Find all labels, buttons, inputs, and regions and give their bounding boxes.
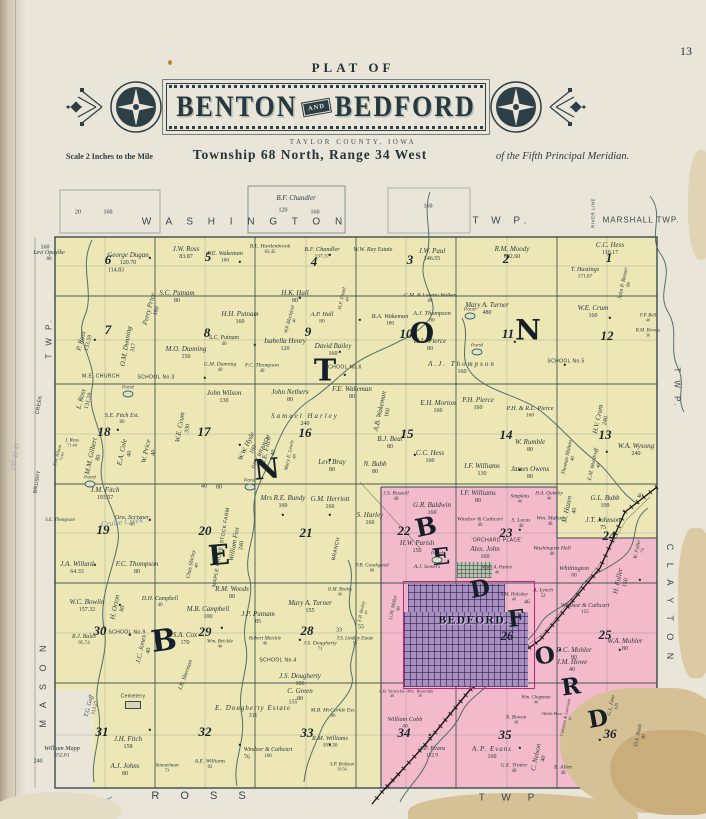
parcel-label: J.W. Paul146.55 xyxy=(419,248,446,262)
parcel-label: P.H. & R.L. Pierce160 xyxy=(506,406,553,419)
parcel-label: M. Hazen40 xyxy=(561,495,581,525)
building-dot xyxy=(239,261,241,263)
pond-label: Pond xyxy=(122,386,134,391)
township-edge-label: T W P xyxy=(479,793,542,804)
section-number: 3 xyxy=(407,253,414,267)
parcel-label: B.F. Chandler137.37 xyxy=(304,247,339,260)
building-dot xyxy=(299,297,301,299)
section-number: 31 xyxy=(96,725,109,739)
parcel-label: A. Lynch52 xyxy=(533,587,553,598)
parcel-label: O.M. Dunning317 xyxy=(119,326,140,369)
pond-symbol xyxy=(432,557,443,564)
building-dot xyxy=(282,514,284,516)
parcel-label: Chas Shirley40 xyxy=(185,550,202,581)
parcel-label: W.A. Mohler80 xyxy=(607,638,642,652)
parcel-label: A.J. Thompson160 xyxy=(428,361,496,375)
pond-label: Pond xyxy=(464,308,476,313)
parcel-label: Isabella Henry120 xyxy=(264,338,306,352)
section-number: 34 xyxy=(398,726,411,740)
pond-symbol xyxy=(472,349,483,356)
parcel-label: Stienelman73 xyxy=(155,763,178,774)
parcel-label: A.P. Evans152.9 xyxy=(418,746,445,759)
parcel-label: N. Bubb80 xyxy=(364,461,387,475)
parcel-label: A.J. Johns80 xyxy=(111,763,140,777)
building-dot xyxy=(417,519,419,521)
parcel-label: C.M. & Loretta Walker80 xyxy=(404,292,456,303)
benton-map-letter: O xyxy=(410,319,434,350)
pond-symbol xyxy=(85,481,96,488)
section-number: 35 xyxy=(499,728,512,742)
acreage-number: 160 xyxy=(41,245,50,252)
parcel-label: P.H. Pierce160 xyxy=(462,397,494,411)
building-dot xyxy=(119,604,121,606)
parcel-label: W.W. Ray Estate xyxy=(354,247,393,254)
parcel-label: P.B. Goodspeed80 xyxy=(355,563,388,574)
parcel-label: William Fox240 xyxy=(228,527,248,563)
township-edge-label: MARSHALL TWP. xyxy=(603,217,680,226)
section-number: 4 xyxy=(311,255,318,269)
township-edge-label: T W P. xyxy=(472,216,531,227)
building-dot xyxy=(239,744,241,746)
pond-label: Pond xyxy=(84,476,96,481)
parcel-label: William Mapp152.81 xyxy=(44,746,80,759)
parcel-label: T. Hastings171.87 xyxy=(571,267,600,280)
building-dot xyxy=(639,579,641,581)
section-number: 16 xyxy=(299,426,312,440)
parcel-label: J.P. Putnam85 xyxy=(241,611,275,625)
acreage-number: 160 xyxy=(424,204,433,211)
parcel-label: J.S. Dougherty71 xyxy=(303,640,336,651)
parcel-label: H.H. Putnam160 xyxy=(221,311,258,325)
township-edge-label: R O S S xyxy=(151,790,254,802)
parcel-label: O.M. Bealey40 xyxy=(328,587,353,597)
parcel-label: B.A. Wakeman180 xyxy=(372,314,409,327)
parcel-label: Wm. Chapman40 xyxy=(521,695,550,705)
parcel-label: W.E. Crum160 xyxy=(578,305,609,319)
parcel-label: F.P. Bell40 xyxy=(640,313,656,323)
parcel-label: G.E. Trotter40 xyxy=(500,762,527,773)
section-number: 28 xyxy=(301,624,314,638)
parcel-label: D.H. Campbell40 xyxy=(142,596,178,608)
parcel-label: John Wilson130 xyxy=(207,390,241,404)
building-dot xyxy=(429,339,431,341)
parcel-label: Robert Meickle40 xyxy=(249,636,281,647)
acreage-number: 20 xyxy=(75,210,81,217)
acreage-number: 160 xyxy=(104,210,113,217)
benton-map-letter: T xyxy=(314,355,336,388)
parcel-label: Wm. Brickle40 xyxy=(207,639,233,650)
parcel-label: E.A. Wilson72.63 xyxy=(53,444,67,467)
parcel-label: I.F. Williams130 xyxy=(464,463,499,477)
parcel-label: Windsor & Cathcart40 xyxy=(457,516,503,527)
section-number: 7 xyxy=(105,323,112,337)
pond-symbol xyxy=(465,313,476,320)
section-number: 17 xyxy=(198,425,211,439)
benton-map-letter: N xyxy=(515,316,541,347)
parcel-label: W.E. Crum330 xyxy=(174,412,193,445)
parcel-label: R.M. Williams107.30 xyxy=(312,736,348,749)
building-dot xyxy=(117,429,119,431)
parcel-label: S.E. Thompson xyxy=(45,517,75,522)
parcel-label: J.H. Fitch158 xyxy=(114,736,142,750)
parcel-label: W. Price40 xyxy=(141,439,160,465)
landmark-label: SCHOOL No.6 xyxy=(324,365,361,371)
building-dot xyxy=(149,519,151,521)
section-number: 2 xyxy=(503,252,510,266)
building-dot xyxy=(149,257,151,259)
building-dot xyxy=(559,649,561,651)
parcel-label: John P. Besser80 xyxy=(617,267,635,301)
parcel-label: Alex. John160 xyxy=(470,546,500,560)
section-number: 6 xyxy=(105,253,112,267)
building-dot xyxy=(329,459,331,461)
building-dot xyxy=(519,747,521,749)
parcel-label: A.P. Evans160 xyxy=(472,746,512,760)
building-dot xyxy=(94,564,96,566)
section-number: 13 xyxy=(599,428,612,442)
acreage-number: 33 xyxy=(336,628,342,635)
parcel-label: G.M. Herriott160 xyxy=(310,496,349,510)
parcel-label: Levi Bray80 xyxy=(318,459,345,473)
parcel-label: J.M. Fitch193.57 xyxy=(91,487,120,501)
acreage-number: 160 xyxy=(311,210,320,217)
landmark-label: CREEK xyxy=(36,395,45,415)
pond-label: Pond xyxy=(471,344,483,349)
township-edge-label: RIVER LINE xyxy=(592,198,597,228)
landmark-label: BRUSHY xyxy=(33,470,42,494)
parcel-label: H. Fuller150 xyxy=(612,568,631,596)
parcel-label: S. Lucas40 xyxy=(512,517,531,528)
parcel-label: G.M. Dunning40 xyxy=(204,361,237,372)
section-number: 11 xyxy=(502,327,514,341)
section-number: 24 xyxy=(603,529,616,543)
acreage-number: 46 xyxy=(524,600,530,607)
section-number: 22 xyxy=(398,524,411,538)
parcel-label: Whittington80 xyxy=(559,566,589,579)
parcel-label: W. Fuller74 xyxy=(633,539,648,560)
parcel-label: F.E. Wakeman80 xyxy=(332,386,372,400)
parcel-label: A.B. Vansickle40 xyxy=(379,689,405,698)
map-labels-layer: Levi Opdylke80George Dugan120.70J.W. Ros… xyxy=(0,0,706,819)
parcel-label: A.P. Hall80 xyxy=(311,312,334,325)
parcel-label: Windsor & Cathcart160 xyxy=(244,747,293,759)
building-dot xyxy=(254,344,256,346)
atlas-page: 13 PLAT OF BENTON AND BED xyxy=(0,0,706,819)
parcel-label: Washington Hall40 xyxy=(533,545,571,556)
parcel-label: W.C. Bowlin157.32 xyxy=(70,599,105,613)
building-dot xyxy=(619,649,621,651)
section-number: 15 xyxy=(401,427,414,441)
pond-symbol xyxy=(123,391,134,398)
parcel-label: W.A. Wysong240 xyxy=(618,443,654,457)
parcel-label: M.B. Campbell100 xyxy=(187,606,230,620)
section-number: 30 xyxy=(94,624,107,638)
building-dot xyxy=(359,319,361,321)
parcel-label: M.B. McCorkle Est.80 xyxy=(311,707,356,718)
parcel-label: B.J. Beal80 xyxy=(377,436,402,450)
parcel-label: E.B. Bealey40 xyxy=(357,601,371,624)
township-edge-label: C L A Y T O N xyxy=(664,544,674,665)
landmark-label: SCHOOL No.4 xyxy=(259,658,296,664)
building-dot xyxy=(519,529,521,531)
acreage-number: 76 xyxy=(244,755,250,762)
parcel-label: A.E. Williams92 xyxy=(195,758,226,769)
acreage-number: 120 xyxy=(279,208,288,215)
parcel-label: E.H. Morton160 xyxy=(420,400,456,414)
benton-map-letter: B xyxy=(149,623,179,659)
parcel-label: F.C. Thompson40 xyxy=(245,362,279,373)
parcel-label: C.C. Hess160 xyxy=(416,450,444,464)
acreage-number: 80 xyxy=(216,485,222,492)
parcel-label: J.S. Russell40 xyxy=(383,490,409,501)
parcel-label: Windsor & Cathcart155 xyxy=(561,603,610,615)
building-dot xyxy=(149,729,151,731)
parcel-label: A.B. Wakeman160 xyxy=(373,391,395,434)
section-number: 1 xyxy=(606,251,613,265)
section-number: 20 xyxy=(199,524,212,538)
parcel-label: R.M. Woods80 xyxy=(215,586,249,600)
building-dot xyxy=(414,454,416,456)
parcel-label: R.M. Brooks30 xyxy=(636,328,660,338)
outside-parcel-label: B.F. Chandler xyxy=(276,195,315,203)
landmark-label: SCHOOL No.9 xyxy=(108,630,145,636)
parcel-label: George Dugan120.70 xyxy=(107,252,149,266)
parcel-label: Mrs. Reynolds30 xyxy=(407,689,433,698)
parcel-label: N. Bowen38 xyxy=(506,715,526,726)
parcel-label: Perry Price160 xyxy=(142,292,164,327)
acreage-number: 114.83 xyxy=(108,268,124,275)
township-edge-label: T W P. xyxy=(46,317,55,358)
building-dot xyxy=(514,341,516,343)
section-number: 12 xyxy=(601,329,614,343)
acreage-number: 155 xyxy=(289,700,298,707)
parcel-label: F.E. Wakeman160 xyxy=(207,251,243,264)
parcel-label: Welsh Bros xyxy=(542,712,562,717)
building-dot xyxy=(606,451,608,453)
building-dot xyxy=(329,514,331,516)
pond-symbol xyxy=(245,484,256,491)
building-dot xyxy=(94,339,96,341)
parcel-label: C. Nelson40 xyxy=(530,743,550,773)
pond-label: Pond xyxy=(244,479,256,484)
parcel-label: Mrs R.E. Bundy160 xyxy=(261,495,306,509)
handwritten-note: 150 40 65 xyxy=(10,443,22,472)
parcel-label: R.J. Bales95.74 xyxy=(72,634,96,646)
parcel-label: E. Dougherty Estate311 xyxy=(215,705,291,719)
section-number: 32 xyxy=(199,725,212,739)
parcel-label: J.S. Dougherty106 xyxy=(279,673,321,687)
parcel-label: G.H. Miller80 xyxy=(388,595,404,621)
building-dot xyxy=(129,634,131,636)
parcel-label: H.K. Hall80 xyxy=(281,290,308,304)
section-number: 8 xyxy=(204,326,211,340)
section-number: 9 xyxy=(305,325,312,339)
bedford-map-letter: R xyxy=(560,673,582,701)
parcel-label: W. Rumble80 xyxy=(515,439,545,453)
parcel-label: Thomas Mahan40 xyxy=(561,440,579,477)
landmark-label: M.E. CHURCH xyxy=(82,374,120,380)
section-number: 33 xyxy=(301,726,314,740)
parcel-label: B.L. Hardenbrook63.45 xyxy=(250,243,291,254)
parcel-label: W.P. Blackford40 xyxy=(283,305,300,335)
parcel-label: B. Allen40 xyxy=(554,764,572,775)
acreage-number: 40 xyxy=(637,494,643,501)
township-edge-label: T W P. xyxy=(672,367,681,408)
landmark-label: Cemetery xyxy=(121,694,146,700)
parcel-label: E.A. Cole40 xyxy=(116,438,136,467)
section-number: 5 xyxy=(205,250,212,264)
building-dot xyxy=(609,317,611,319)
building-dot xyxy=(221,627,223,629)
building-dot xyxy=(599,519,601,521)
bedford-map-letter: D xyxy=(586,705,610,733)
parcel-label: M.O. Dunning150 xyxy=(166,346,207,360)
parcel-label: John Nethers80 xyxy=(271,389,308,403)
parcel-label: S.C. Putnam80 xyxy=(159,290,194,304)
landmark-label: SCHOOL No.3 xyxy=(137,375,174,381)
section-number: 21 xyxy=(300,526,313,540)
parcel-label: T.S. Lindley Estate55 xyxy=(337,636,374,646)
landmark-label: 'ORCHARD PLACE' xyxy=(472,538,523,544)
parcel-label: Mary E. Lewis40 xyxy=(284,440,301,472)
bedford-map-letter: D xyxy=(468,575,492,603)
building-dot xyxy=(339,351,341,353)
parcel-label: Mary A. Turner155 xyxy=(288,600,332,614)
parcel-label: P. Ross133.59 xyxy=(76,330,95,353)
parcel-label: G.L. Bubb109 xyxy=(591,495,620,509)
building-dot xyxy=(429,734,431,736)
parcel-label: G.L. Finn120 xyxy=(607,695,622,717)
acreage-number: 240 xyxy=(34,759,43,766)
parcel-label: Coleman & Larrison40 xyxy=(559,698,576,737)
building-dot xyxy=(329,254,331,256)
parcel-label: S.P. Bridson59.50 xyxy=(330,762,354,772)
building-dot xyxy=(204,377,206,379)
building-dot xyxy=(519,469,521,471)
parcel-label: I.F. Williams80 xyxy=(460,490,495,504)
building-dot xyxy=(239,444,241,446)
section-number: 25 xyxy=(599,628,612,642)
parcel-label: R.M. Moody302.60 xyxy=(495,246,530,260)
section-number: 14 xyxy=(500,428,513,442)
landmark-label: BRANCH xyxy=(332,537,342,561)
parcel-label: M.M. Gilbert80 xyxy=(84,437,106,476)
building-dot xyxy=(564,364,566,366)
parcel-label: H.F. Fintel40 xyxy=(337,287,352,312)
building-dot xyxy=(344,374,346,376)
township-edge-label: W A S H I N G T O N xyxy=(142,217,348,228)
bedford-map-letter: O xyxy=(533,642,557,670)
section-number: 18 xyxy=(98,425,111,439)
acreage-number: 40 xyxy=(201,484,207,491)
section-number: 29 xyxy=(199,625,212,639)
building-dot xyxy=(299,639,301,641)
parcel-label: S. Harley160 xyxy=(357,512,383,526)
parcel-label: E.M. Woodruff40 xyxy=(587,448,605,483)
parcel-label: J.M. Howe40 xyxy=(557,659,588,673)
city-name-label: BEDFORD. xyxy=(438,615,509,628)
parcel-label: Simpkins40 xyxy=(511,494,530,505)
parcel-label: J.A. Willard64.33 xyxy=(60,561,93,575)
parcel-label: H.W. Parish150 xyxy=(400,540,434,554)
building-dot xyxy=(599,739,601,741)
handwritten-note: Cruise Creek xyxy=(101,516,144,529)
parcel-label: L. Ross131.59 xyxy=(75,388,94,412)
acreage-number: 55 xyxy=(358,625,364,632)
parcel-label: H. Orton80 xyxy=(109,594,128,622)
parcel-label: S.C. Putnam40 xyxy=(209,335,239,347)
parcel-label: F.C. Thompson80 xyxy=(116,561,158,575)
parcel-label: O.S. Nash80 xyxy=(633,724,649,748)
parcel-label: T.G. Goff113.27 xyxy=(83,695,100,720)
building-dot xyxy=(329,744,331,746)
parcel-label: I.N. Sherman xyxy=(178,659,195,691)
pond-label: Pond xyxy=(431,552,443,557)
township-edge-label: M A S O N xyxy=(39,640,49,727)
parcel-label: J.W. Ross83.87 xyxy=(173,246,200,260)
parcel-label: H.A. Quimby40 xyxy=(535,491,563,502)
parcel-label: James Owens80 xyxy=(511,466,549,480)
parcel-label: Levi Opdylke80 xyxy=(33,250,65,262)
